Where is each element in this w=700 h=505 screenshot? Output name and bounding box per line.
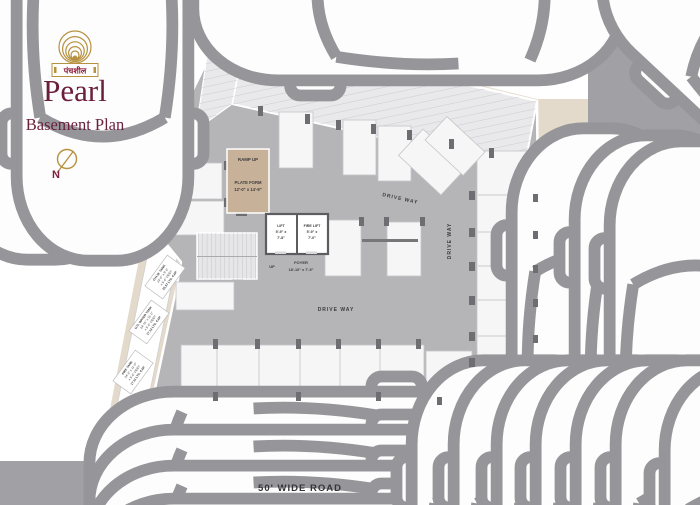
- column-marker: [469, 191, 475, 200]
- lift-label: LIFT: [277, 224, 285, 228]
- ramp-up-label: RAMP UP: [238, 157, 258, 162]
- basement-plan-page: RAMP UP PLATE FORM 12'-0" x 14'-9" LIFT …: [0, 0, 700, 505]
- column-marker: [336, 339, 341, 349]
- plan-title: Basement Plan: [26, 115, 125, 134]
- column-marker: [255, 339, 260, 349]
- wall-segment: [362, 239, 418, 242]
- column-marker: [437, 397, 442, 405]
- column-marker: [533, 299, 538, 307]
- fire-lift-size-2: 7'-0": [308, 236, 316, 240]
- site-plan-drawing: RAMP UP PLATE FORM 12'-0" x 14'-9" LIFT …: [0, 0, 700, 505]
- ramp-platform: RAMP UP PLATE FORM 12'-0" x 14'-9": [227, 149, 269, 213]
- column-marker: [469, 228, 475, 237]
- road-label: 50' WIDE ROAD: [258, 483, 342, 494]
- foyer-label: FOYER: [294, 260, 308, 265]
- car-icon: [193, 0, 622, 96]
- column-marker: [376, 339, 381, 349]
- column-marker: [296, 392, 301, 401]
- column-marker: [213, 339, 218, 349]
- column-marker: [416, 339, 421, 349]
- column-marker: [449, 139, 454, 149]
- column-marker: [376, 392, 381, 401]
- parking-stall: [325, 220, 361, 276]
- column-marker: [533, 265, 538, 273]
- column-marker: [489, 148, 494, 158]
- column-marker: [407, 130, 412, 140]
- column-marker: [533, 194, 538, 202]
- column-marker: [469, 332, 475, 341]
- column-marker: [213, 392, 218, 401]
- column-marker: [533, 335, 538, 343]
- column-marker: [371, 124, 376, 134]
- column-marker: [469, 358, 475, 367]
- column-marker: [359, 217, 364, 226]
- lift-size-2: 7'-8": [277, 236, 285, 240]
- logo-name: Pearl: [43, 73, 107, 108]
- fire-lift-size-1: 5'-9" x: [307, 230, 318, 234]
- lift-size-1: 5'-9" x: [276, 230, 287, 234]
- driveway-bottom-label: DRIVE WAY: [318, 307, 355, 313]
- column-marker: [533, 231, 538, 239]
- column-marker: [336, 120, 341, 130]
- fire-lift-label: FIRE LIFT: [304, 224, 322, 228]
- driveway-right-label: DRIVE WAY: [447, 223, 453, 260]
- staircase: [197, 233, 257, 279]
- column-marker: [258, 106, 263, 116]
- column-marker: [469, 296, 475, 305]
- up-label: UP: [269, 264, 275, 269]
- platform-label: PLATE FORM: [235, 180, 262, 185]
- platform-size: 12'-0" x 14'-9": [234, 187, 261, 192]
- parking-stall: [176, 282, 234, 310]
- column-marker: [469, 262, 475, 271]
- foyer-size: 18'-10" x 7'-9": [289, 268, 314, 272]
- parking-stall: [387, 222, 421, 276]
- column-marker: [296, 339, 301, 349]
- column-marker: [305, 114, 310, 124]
- column-marker: [420, 217, 425, 226]
- north-label: N: [52, 169, 60, 181]
- column-marker: [384, 217, 389, 226]
